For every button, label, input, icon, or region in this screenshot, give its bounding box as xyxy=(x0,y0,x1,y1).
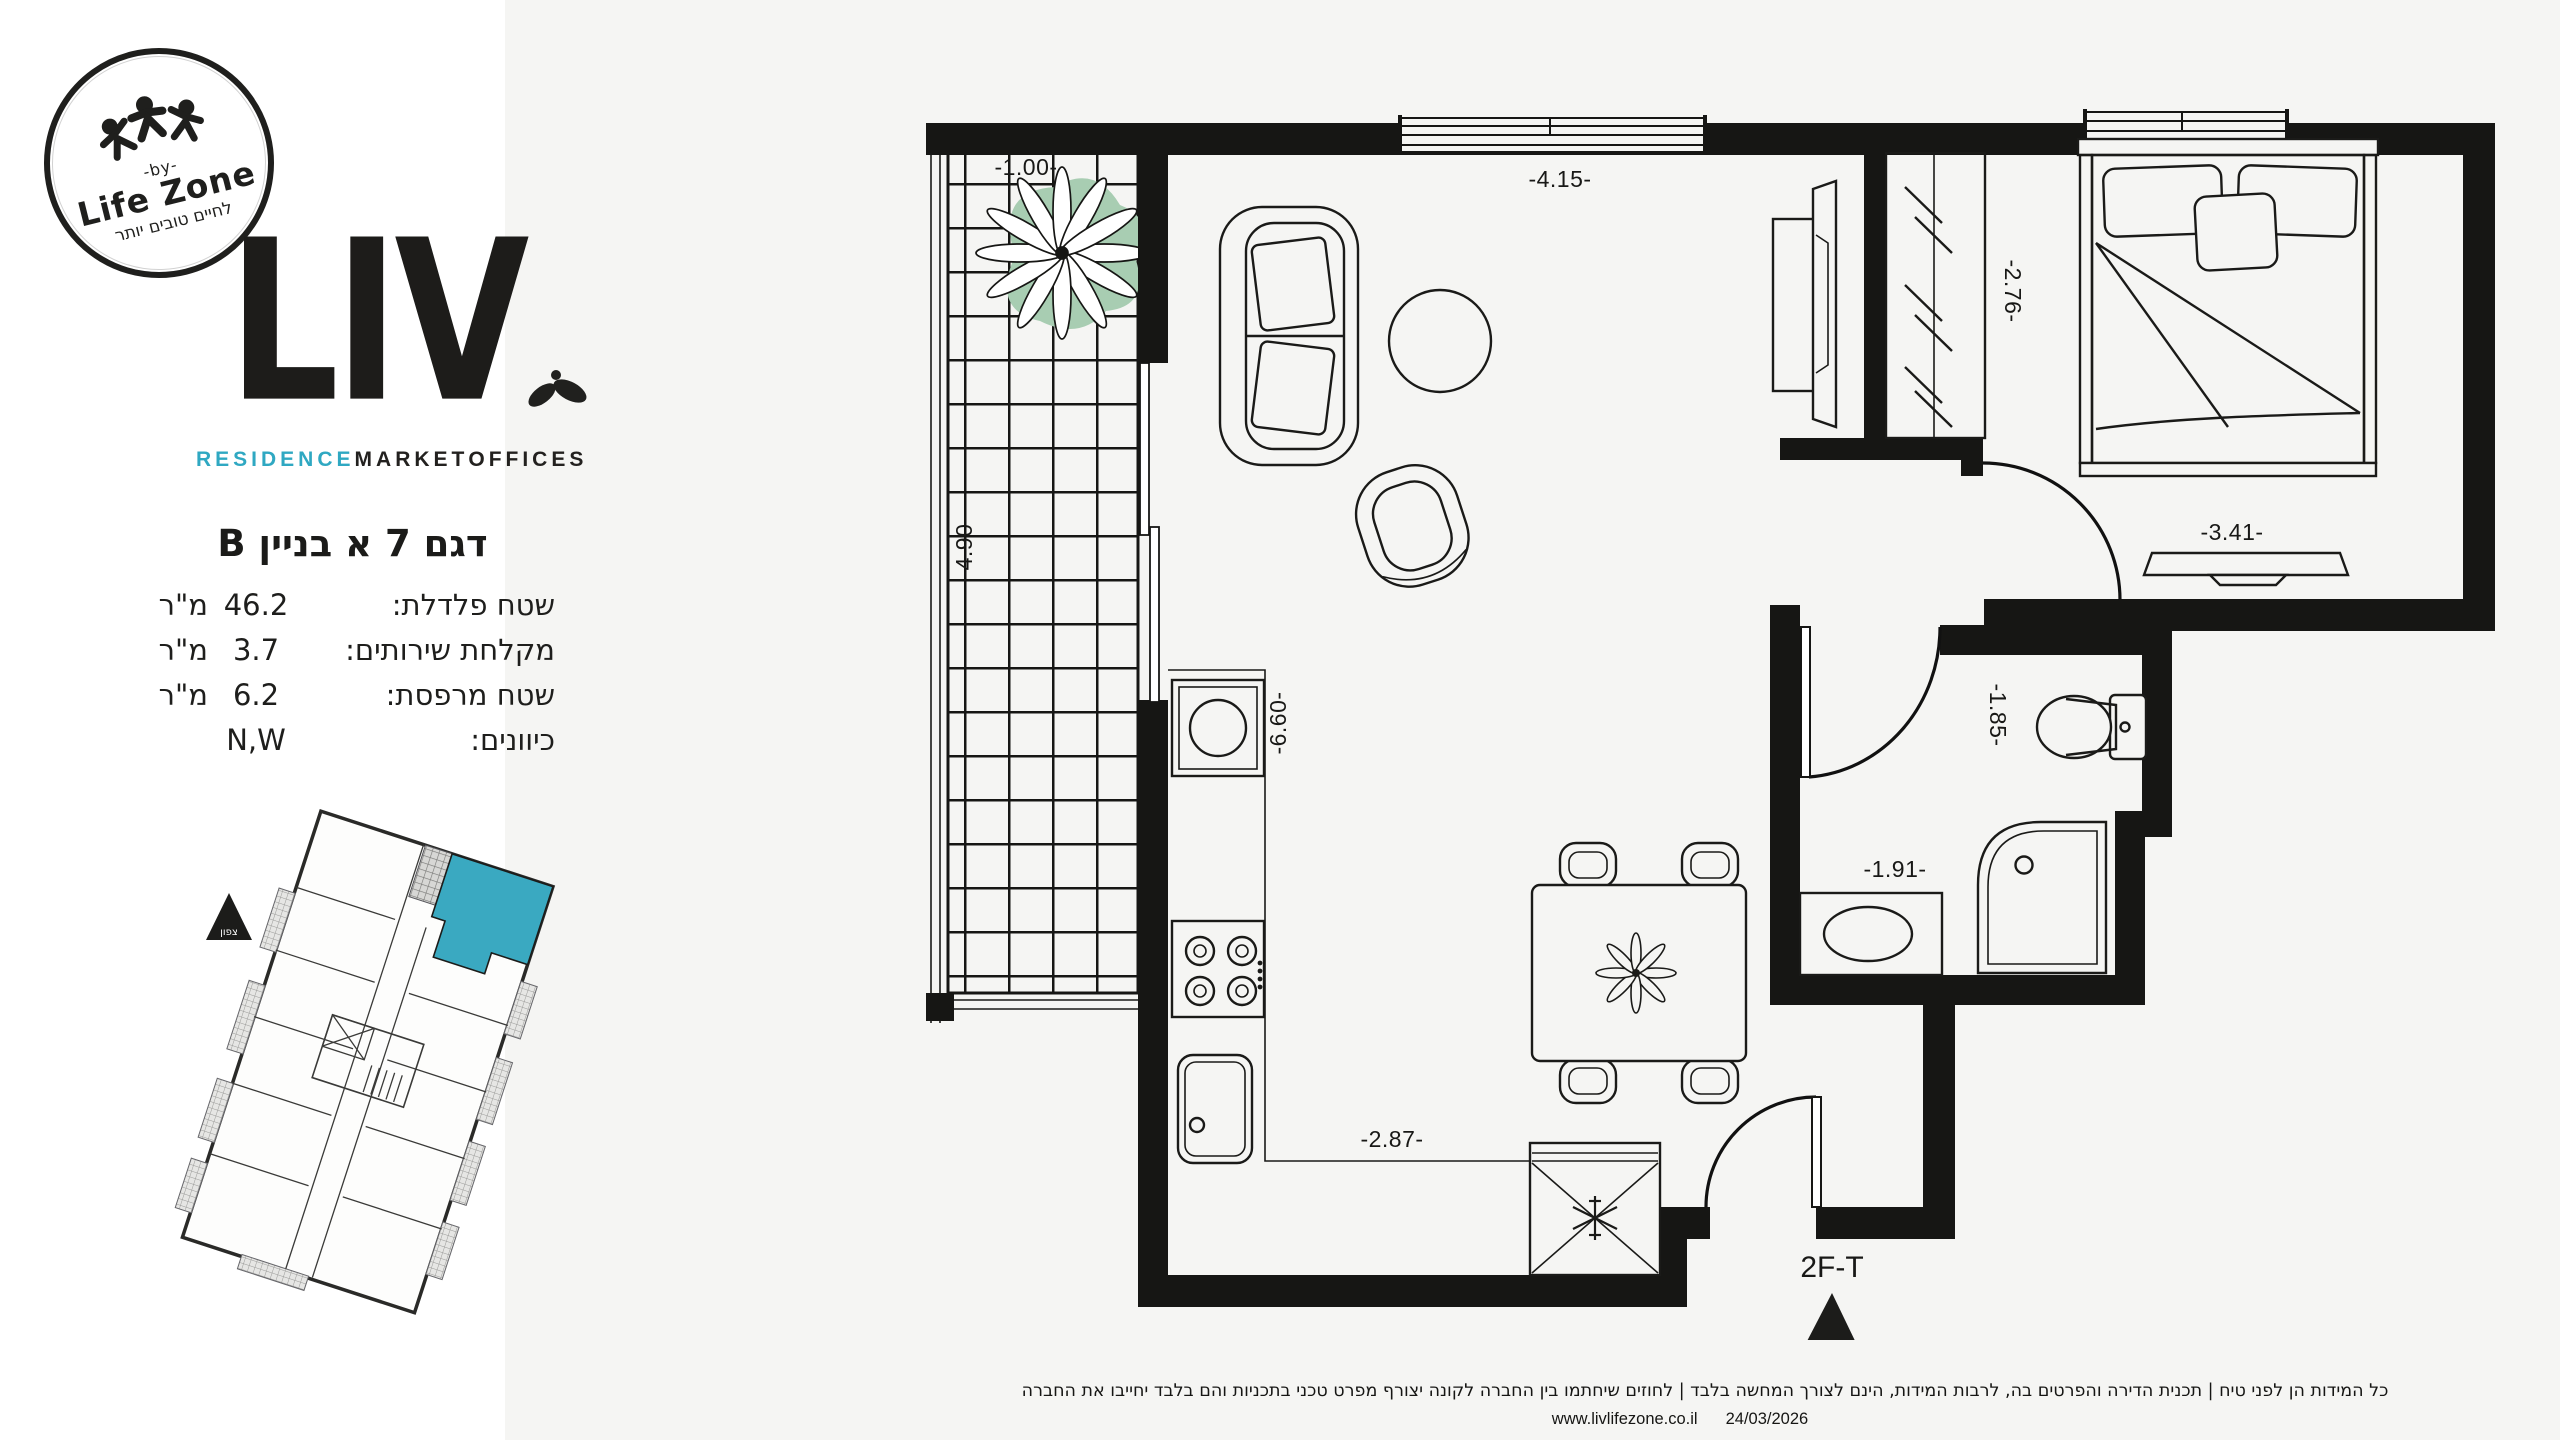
entry-label: 2F-T xyxy=(1800,1251,1863,1284)
floorplan: -1.00- -4.15- -4.90- -2.76- -6.60- -3.41… xyxy=(920,95,2560,1340)
brand-categories: RESIDENCE MARKET OFFICES xyxy=(196,448,568,472)
dim-kitchen-height: -6.60- xyxy=(1265,691,1291,754)
sliding-door-icon xyxy=(1140,363,1159,702)
spec-unit: מ"ר xyxy=(150,588,208,622)
spec-value: 3.7 xyxy=(208,633,304,667)
washer-icon xyxy=(1172,680,1264,776)
bedroom-door-arc xyxy=(1983,463,2120,600)
centerpiece-icon xyxy=(1596,933,1676,1013)
category-market: MARKET xyxy=(355,448,469,472)
category-residence: RESIDENCE xyxy=(196,448,355,472)
category-offices: OFFICES xyxy=(468,448,587,472)
bathroom-door-leaf xyxy=(1801,627,1810,777)
people-icon xyxy=(86,81,214,171)
entry-door-arc xyxy=(1706,1097,1816,1207)
spec-label: מקלחת שירותים: xyxy=(345,633,555,667)
building-keyplan xyxy=(168,806,568,1316)
bed-icon xyxy=(2078,139,2378,476)
toilet-icon xyxy=(2037,695,2146,759)
spec-label: שטח מרפסת: xyxy=(386,678,555,712)
spec-unit: מ"ר xyxy=(150,678,208,712)
entry-arrow-icon xyxy=(1804,1293,1858,1340)
spec-unit: מ"ר xyxy=(150,633,208,667)
spec-row-bath: מקלחת שירותים: 3.7 מ"ר xyxy=(150,633,555,667)
spec-value: 6.2 xyxy=(208,678,304,712)
bath-sink-icon xyxy=(1800,893,1942,975)
spec-value: N,W xyxy=(208,723,304,757)
fridge-icon xyxy=(1530,1143,1660,1275)
footer-line: www.livlifezone.co.il 24/03/2026 xyxy=(1280,1410,2080,1429)
footer-website: www.livlifezone.co.il xyxy=(1552,1410,1698,1429)
armchair-icon xyxy=(1345,454,1480,598)
kitchen-counter xyxy=(1168,670,1530,1275)
dim-balcony-height: -4.90- xyxy=(951,515,977,578)
spec-label: כיוונים: xyxy=(470,723,555,757)
tv-icon xyxy=(1773,181,1836,427)
building-outline xyxy=(168,806,568,1316)
spec-row-balcony: שטח מרפסת: 6.2 מ"ר xyxy=(150,678,555,712)
dim-kitchen-width: -2.87- xyxy=(1360,1126,1423,1152)
page: -by- Life Zone לחיים טובים יותר LIV RESI… xyxy=(0,0,2560,1440)
sofa-icon xyxy=(1220,207,1358,465)
spec-label: שטח פלדלת: xyxy=(392,588,555,622)
shelf-icon xyxy=(2144,553,2348,585)
spec-row-directions: כיוונים: N,W xyxy=(150,723,555,757)
dim-living-width: -4.15- xyxy=(1528,166,1591,192)
dim-bedroom-width: -3.41- xyxy=(2200,519,2263,545)
walls xyxy=(926,123,2495,1307)
kitchen-sink-icon xyxy=(1178,1055,1252,1163)
coffee-table-icon xyxy=(1389,290,1491,392)
dim-closet: -2.76- xyxy=(2000,259,2026,322)
shower-icon xyxy=(1978,822,2106,973)
footer-date: 24/03/2026 xyxy=(1726,1410,1809,1429)
spec-row-pladelet: שטח פלדלת: 46.2 מ"ר xyxy=(150,588,555,622)
unit-specs: שטח פלדלת: 46.2 מ"ר מקלחת שירותים: 3.7 מ… xyxy=(150,588,555,768)
cooktop-icon xyxy=(1172,921,1264,1017)
unit-title: דגם 7 א בניין B xyxy=(150,522,555,565)
dining-table-icon xyxy=(1532,843,1746,1103)
wardrobe-icon xyxy=(1886,153,1985,438)
spec-value: 46.2 xyxy=(208,588,304,622)
dim-balcony-width: -1.00- xyxy=(994,154,1057,180)
footer-disclaimer: כל המידות הן לפני טיח | תכנית הדירה והפר… xyxy=(855,1381,2555,1401)
bathroom-door-arc xyxy=(1809,627,1940,777)
window-icon xyxy=(1400,115,1705,151)
sprout-icon xyxy=(524,362,590,418)
liv-logo: LIV xyxy=(228,212,525,434)
dim-bath-b: -1.91- xyxy=(1863,856,1926,882)
left-panel: -by- Life Zone לחיים טובים יותר LIV RESI… xyxy=(0,0,505,1440)
dim-bath-a: -1.85- xyxy=(1985,683,2011,746)
entry-door-leaf xyxy=(1812,1097,1821,1207)
